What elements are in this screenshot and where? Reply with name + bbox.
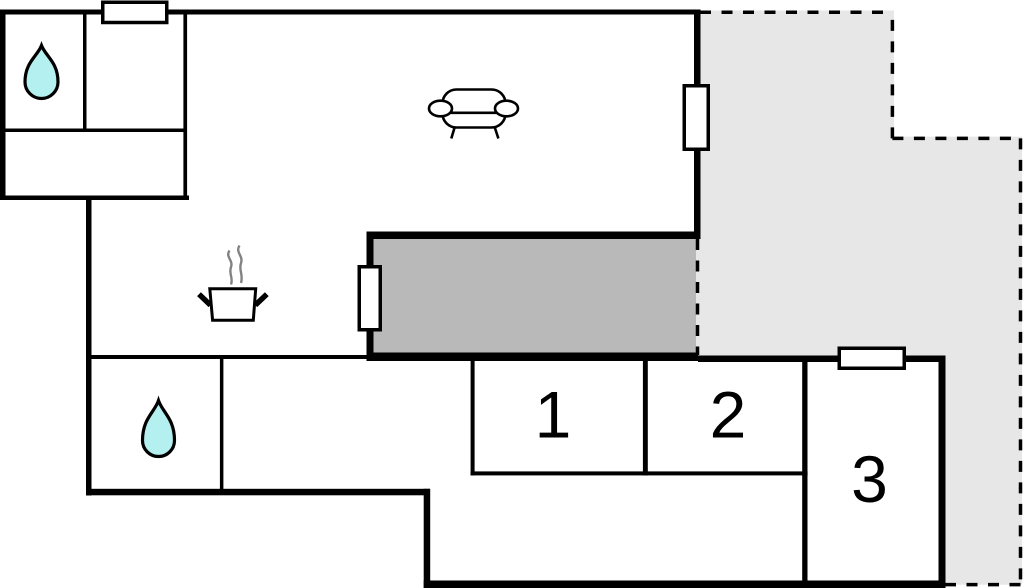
svg-text:2: 2 bbox=[710, 378, 747, 452]
svg-text:3: 3 bbox=[851, 442, 888, 516]
svg-text:1: 1 bbox=[535, 378, 572, 452]
